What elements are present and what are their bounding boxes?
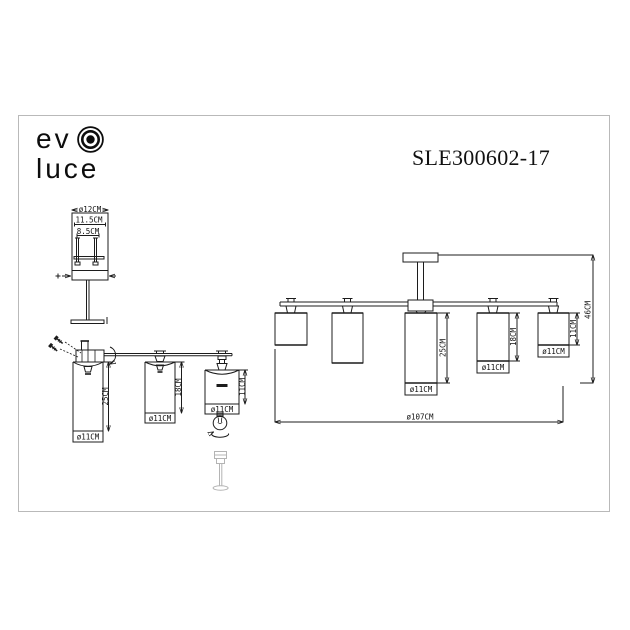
logo-text-luce: luce xyxy=(36,154,105,183)
side-compress-arrows xyxy=(56,274,117,279)
front-center-height-label: 25CM xyxy=(439,338,448,357)
shade-medium-height-dim: 18CM xyxy=(174,362,185,413)
shade-medium xyxy=(145,351,175,413)
down-stem xyxy=(418,262,424,302)
front-mid-diameter-label: ø11CM xyxy=(482,363,505,372)
side-medium-diameter-label: ø11CM xyxy=(149,414,172,423)
front-center-diameter-label: ø11CM xyxy=(410,385,433,394)
shade-1 xyxy=(275,313,307,345)
center-hub xyxy=(408,300,433,311)
ceiling-plate xyxy=(403,253,438,262)
front-mid-height-label: 18CM xyxy=(509,327,518,346)
shade-medium-diameter-dim: ø11CM xyxy=(145,413,175,423)
shade-2 xyxy=(332,313,363,363)
front-end-diameter-label: ø11CM xyxy=(542,347,565,356)
overall-height-label: 46CM xyxy=(584,300,593,319)
center-shade-height-dim: 25CM xyxy=(437,313,450,383)
shade-large xyxy=(73,362,103,431)
inner-width-dim: 8.5CM xyxy=(77,227,100,238)
overall-width-label: ø107CM xyxy=(406,413,434,422)
overall-height-dim: 46CM xyxy=(438,255,593,383)
shade-detail-drawing: ø12CM 11.5CM 8.5CM xyxy=(50,200,120,332)
logo-top-row: ev xyxy=(36,123,105,154)
center-shade-diameter-dim: ø11CM xyxy=(405,383,437,395)
brand-logo: ev luce xyxy=(36,123,105,183)
shade-3-center xyxy=(405,313,437,383)
end-shade-diameter-dim: ø11CM xyxy=(538,345,569,357)
outer-width-dim: 11.5CM xyxy=(75,216,106,227)
shade-5 xyxy=(538,313,569,345)
detail-outer-width-label: 11.5CM xyxy=(75,216,103,225)
mid-shade-height-dim: 18CM xyxy=(509,313,520,361)
stem-part xyxy=(213,452,228,491)
side-medium-height-label: 18CM xyxy=(174,378,183,397)
detail-inner-width-label: 8.5CM xyxy=(77,227,100,236)
model-number: SLE300602-17 xyxy=(412,145,550,171)
logo-target-icon xyxy=(76,125,105,154)
shade-4 xyxy=(477,313,509,361)
bulb-icon xyxy=(213,412,227,430)
side-view-drawing: 25CM ø11CM 18CM ø11CM xyxy=(48,332,250,448)
front-end-height-label: 11CM xyxy=(569,319,578,338)
spare-stem-drawing xyxy=(210,450,236,496)
socket-frame xyxy=(74,238,104,265)
side-small-height-label: 11CM xyxy=(238,377,247,396)
logo-text-ev: ev xyxy=(36,124,72,153)
bulb-rotate-arrow-icon xyxy=(212,432,229,437)
shade-large-diameter-dim: ø11CM xyxy=(73,431,103,442)
page-canvas: ev luce SLE300602-17 ø12CM 11.5CM xyxy=(0,0,630,630)
ceiling-canopy xyxy=(76,341,104,362)
mid-shade-diameter-dim: ø11CM xyxy=(477,361,509,373)
side-large-diameter-label: ø11CM xyxy=(77,432,100,441)
end-shade-height-dim: 11CM xyxy=(569,313,580,345)
horizontal-bar xyxy=(104,354,232,356)
side-large-height-label: 25CM xyxy=(101,387,110,406)
front-view-drawing: 25CM ø11CM 18CM ø11CM 11CM ø11CM xyxy=(270,248,615,433)
shade-small xyxy=(205,351,239,404)
mounting-stem xyxy=(71,280,107,324)
